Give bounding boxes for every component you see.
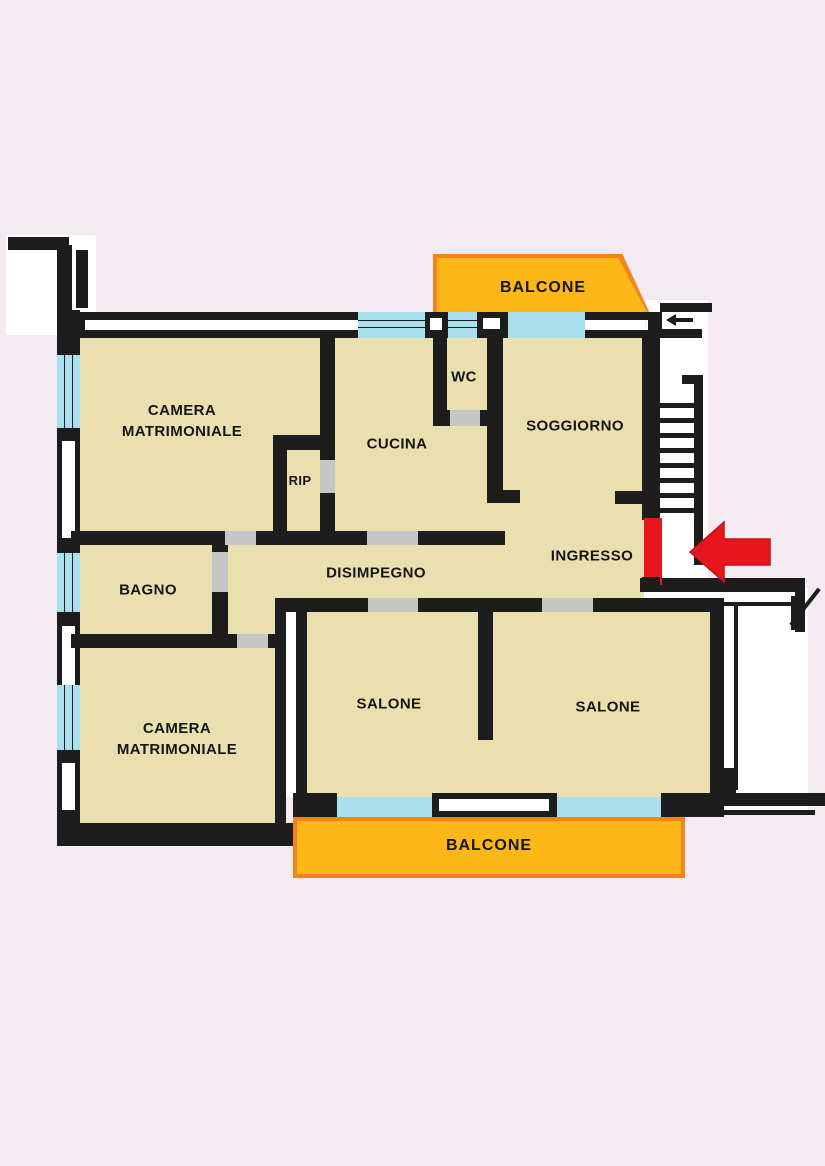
wall-core (585, 320, 645, 330)
wall-salone-divider (478, 603, 493, 740)
window-glazing (448, 320, 477, 321)
label-salone-right: SALONE (576, 697, 641, 718)
wall (76, 250, 88, 308)
window-left-3 (57, 685, 80, 750)
label-balcone-bottom: BALCONE (446, 835, 532, 857)
wall-camera1-cucina (320, 336, 335, 435)
door-camera1 (225, 531, 256, 545)
window-bottom-1 (337, 797, 432, 817)
label-bagno: BAGNO (119, 580, 177, 601)
wall-salone-top (275, 598, 724, 612)
wall-cucina-right (487, 336, 503, 492)
label-camera-matrimoniale-2: CAMERA MATRIMONIALE (117, 718, 237, 760)
door-cucina (367, 531, 418, 545)
wall (57, 612, 80, 626)
entrance-door-marker (644, 518, 662, 585)
wall (275, 612, 286, 823)
label-line: MATRIMONIALE (117, 741, 237, 758)
label-salone-left: SALONE (357, 694, 422, 715)
window-left-1 (57, 355, 80, 428)
label-ingresso: INGRESSO (551, 546, 633, 567)
wall (75, 441, 80, 538)
wall-soggiorno-stub-right (615, 491, 644, 504)
label-soggiorno: SOGGIORNO (526, 416, 624, 437)
stair-direction-arrow-icon (664, 313, 694, 327)
window-glazing (64, 685, 65, 750)
wall-pier-core (483, 318, 500, 329)
label-line: CAMERA (143, 720, 211, 737)
wall-building-right (642, 330, 660, 520)
wall-rip-top (273, 435, 335, 450)
wall (293, 793, 337, 817)
window-glazing (72, 685, 73, 750)
window-glazing (358, 320, 425, 321)
window-glazing (448, 327, 477, 328)
wall (642, 577, 660, 592)
label-wc: WC (451, 367, 477, 388)
landing-line (734, 606, 738, 790)
label-line: CAMERA (148, 402, 216, 419)
wall-core (286, 612, 296, 797)
label-balcone-top: BALCONE (500, 277, 586, 299)
label-disimpegno: DISIMPEGNO (326, 563, 426, 584)
stairwell-top-cap (682, 375, 703, 384)
wall-core (62, 763, 75, 810)
stair-tread (658, 433, 694, 438)
window-top-1 (358, 312, 425, 338)
landing-line (724, 793, 825, 806)
wall (713, 768, 736, 795)
stair-tread (658, 418, 694, 423)
window-top-2 (448, 312, 477, 338)
door-salone-left (368, 598, 418, 612)
label-camera-matrimoniale-1: CAMERA MATRIMONIALE (122, 400, 242, 442)
door-salone-right (542, 598, 593, 612)
wall-rip-left (273, 450, 287, 532)
stair-stub (660, 329, 702, 338)
stair-tread (658, 463, 694, 468)
wall-pier-core (430, 318, 442, 330)
stair-tread (658, 403, 694, 408)
wall (71, 330, 358, 338)
stair-tread (658, 493, 694, 498)
stair-stub (660, 303, 712, 312)
label-line: MATRIMONIALE (122, 423, 242, 440)
door-rip (320, 460, 335, 493)
stair-tread (658, 478, 694, 483)
wall (71, 312, 358, 320)
label-rip: RIP (289, 472, 312, 490)
label-cucina: CUCINA (367, 434, 428, 455)
window-glazing (72, 553, 73, 612)
wall (57, 310, 80, 355)
wall-core (62, 441, 75, 538)
wall-bottom-left (57, 823, 293, 846)
window-glazing (72, 355, 73, 428)
floor-plan: CAMERA MATRIMONIALE CUCINA WC SOGGIORNO … (0, 0, 825, 1166)
stair-tread (658, 508, 694, 513)
wall-wc-left (433, 336, 447, 412)
window-glazing (358, 327, 425, 328)
wall-corridor-top (71, 531, 505, 545)
window-glazing (64, 355, 65, 428)
window-top-3 (508, 312, 585, 338)
door-bagno (212, 552, 228, 592)
wall-core (85, 320, 358, 330)
wall (57, 750, 80, 763)
door-wc (450, 410, 480, 426)
wall (296, 612, 307, 797)
wall-soggiorno-stub-left (487, 490, 520, 503)
window-bottom-2 (557, 797, 661, 817)
wall (75, 763, 80, 810)
stair-tread (658, 448, 694, 453)
entrance-arrow-icon (686, 518, 776, 586)
wall-wc-bottom (433, 410, 450, 426)
window-glazing (64, 553, 65, 612)
wall (57, 428, 80, 441)
window-left-2 (57, 553, 80, 612)
landing-line (663, 602, 795, 606)
landing-line (673, 810, 815, 815)
room-fill-corridor-extension (228, 598, 282, 638)
door-camera2 (237, 634, 268, 648)
wall-pier-core (439, 799, 549, 811)
